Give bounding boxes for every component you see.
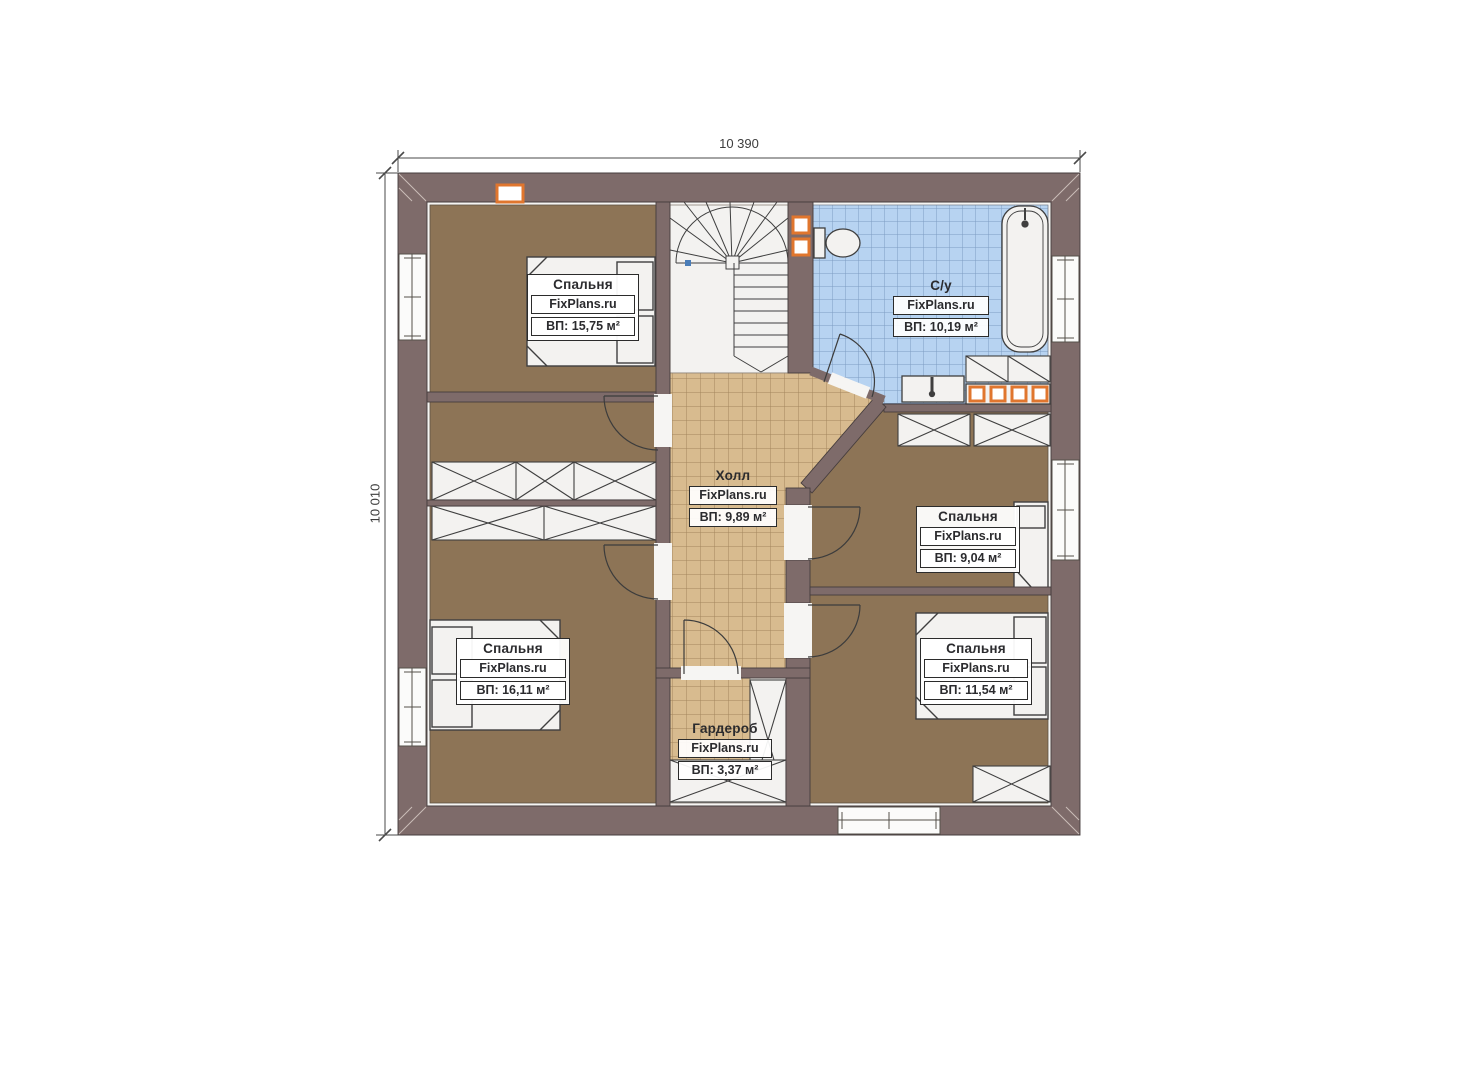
room-title: Гардероб (678, 721, 772, 736)
dimension-line-top (392, 150, 1086, 172)
staircase-floor (670, 205, 788, 373)
room-area: ВП: 9,89 м² (689, 508, 777, 527)
wall-pier-1 (786, 488, 810, 505)
closet-row-upper (432, 462, 656, 500)
wall-right-bedrooms (810, 587, 1051, 595)
label-bedroom-bottom-right: Спальня FixPlans.ru ВП: 11,54 м² (920, 638, 1032, 705)
sink-fixture (902, 376, 964, 402)
label-bedroom-bottom-left: Спальня FixPlans.ru ВП: 16,11 м² (456, 638, 570, 705)
room-title: Спальня (920, 509, 1016, 524)
label-bedroom-middle-right: Спальня FixPlans.ru ВП: 9,04 м² (916, 506, 1020, 573)
vent-stair-wall-1 (793, 217, 809, 233)
wall-bath-south (884, 404, 1051, 412)
watermark: FixPlans.ru (893, 296, 989, 315)
window-bottom (838, 807, 940, 834)
room-area: ВП: 16,11 м² (460, 681, 566, 700)
window-right-bathroom (1052, 256, 1079, 342)
watermark: FixPlans.ru (678, 739, 772, 758)
dimension-width-label: 10 390 (659, 136, 819, 151)
label-wardrobe: Гардероб FixPlans.ru ВП: 3,37 м² (678, 721, 772, 780)
wall-hall-left (656, 202, 670, 806)
room-title: Холл (689, 468, 777, 483)
vent-stair-wall-2 (793, 239, 809, 255)
room-title: Спальня (531, 277, 635, 292)
floor-plan-drawing (0, 0, 1473, 1080)
room-area: ВП: 15,75 м² (531, 317, 635, 336)
closet-row-lower (432, 506, 656, 540)
closet-bottom-right (973, 766, 1050, 802)
wall-pier-2 (786, 560, 810, 603)
room-area: ВП: 9,04 м² (920, 549, 1016, 568)
window-right-bedroom (1052, 460, 1079, 560)
window-left-lower (399, 668, 426, 746)
dimension-height-label: 10 010 (368, 439, 383, 569)
room-title: Спальня (924, 641, 1028, 656)
room-area: ВП: 11,54 м² (924, 681, 1028, 700)
window-left-upper (399, 254, 426, 340)
wall-bedroomTL-south (427, 392, 656, 402)
stair-newel (726, 256, 739, 269)
bathroom-cabinet-hatched (966, 356, 1050, 382)
room-area: ВП: 10,19 м² (893, 318, 989, 337)
bathtub-fixture (1002, 206, 1048, 352)
watermark: FixPlans.ru (924, 659, 1028, 678)
watermark: FixPlans.ru (531, 295, 635, 314)
watermark: FixPlans.ru (689, 486, 777, 505)
floor-plan-page: 10 390 10 010 Спальня FixPlans.ru ВП: 15… (0, 0, 1473, 1080)
room-title: С/у (893, 278, 989, 293)
room-area: ВП: 3,37 м² (678, 761, 772, 780)
vent-top-wall (497, 185, 523, 202)
stair-marker-dot (685, 260, 691, 266)
wall-closet-divider (427, 500, 656, 506)
watermark: FixPlans.ru (460, 659, 566, 678)
label-hall: Холл FixPlans.ru ВП: 9,89 м² (689, 468, 777, 527)
toilet-fixture (814, 228, 860, 258)
watermark: FixPlans.ru (920, 527, 1016, 546)
bathroom-cabinet-orange (966, 384, 1050, 404)
closet-bathwall-left (898, 414, 970, 446)
label-bathroom: С/у FixPlans.ru ВП: 10,19 м² (893, 278, 989, 337)
closet-bathwall-right (974, 414, 1050, 446)
label-bedroom-top-left: Спальня FixPlans.ru ВП: 15,75 м² (527, 274, 639, 341)
room-title: Спальня (460, 641, 566, 656)
wall-bedroomBR-west (786, 678, 810, 806)
